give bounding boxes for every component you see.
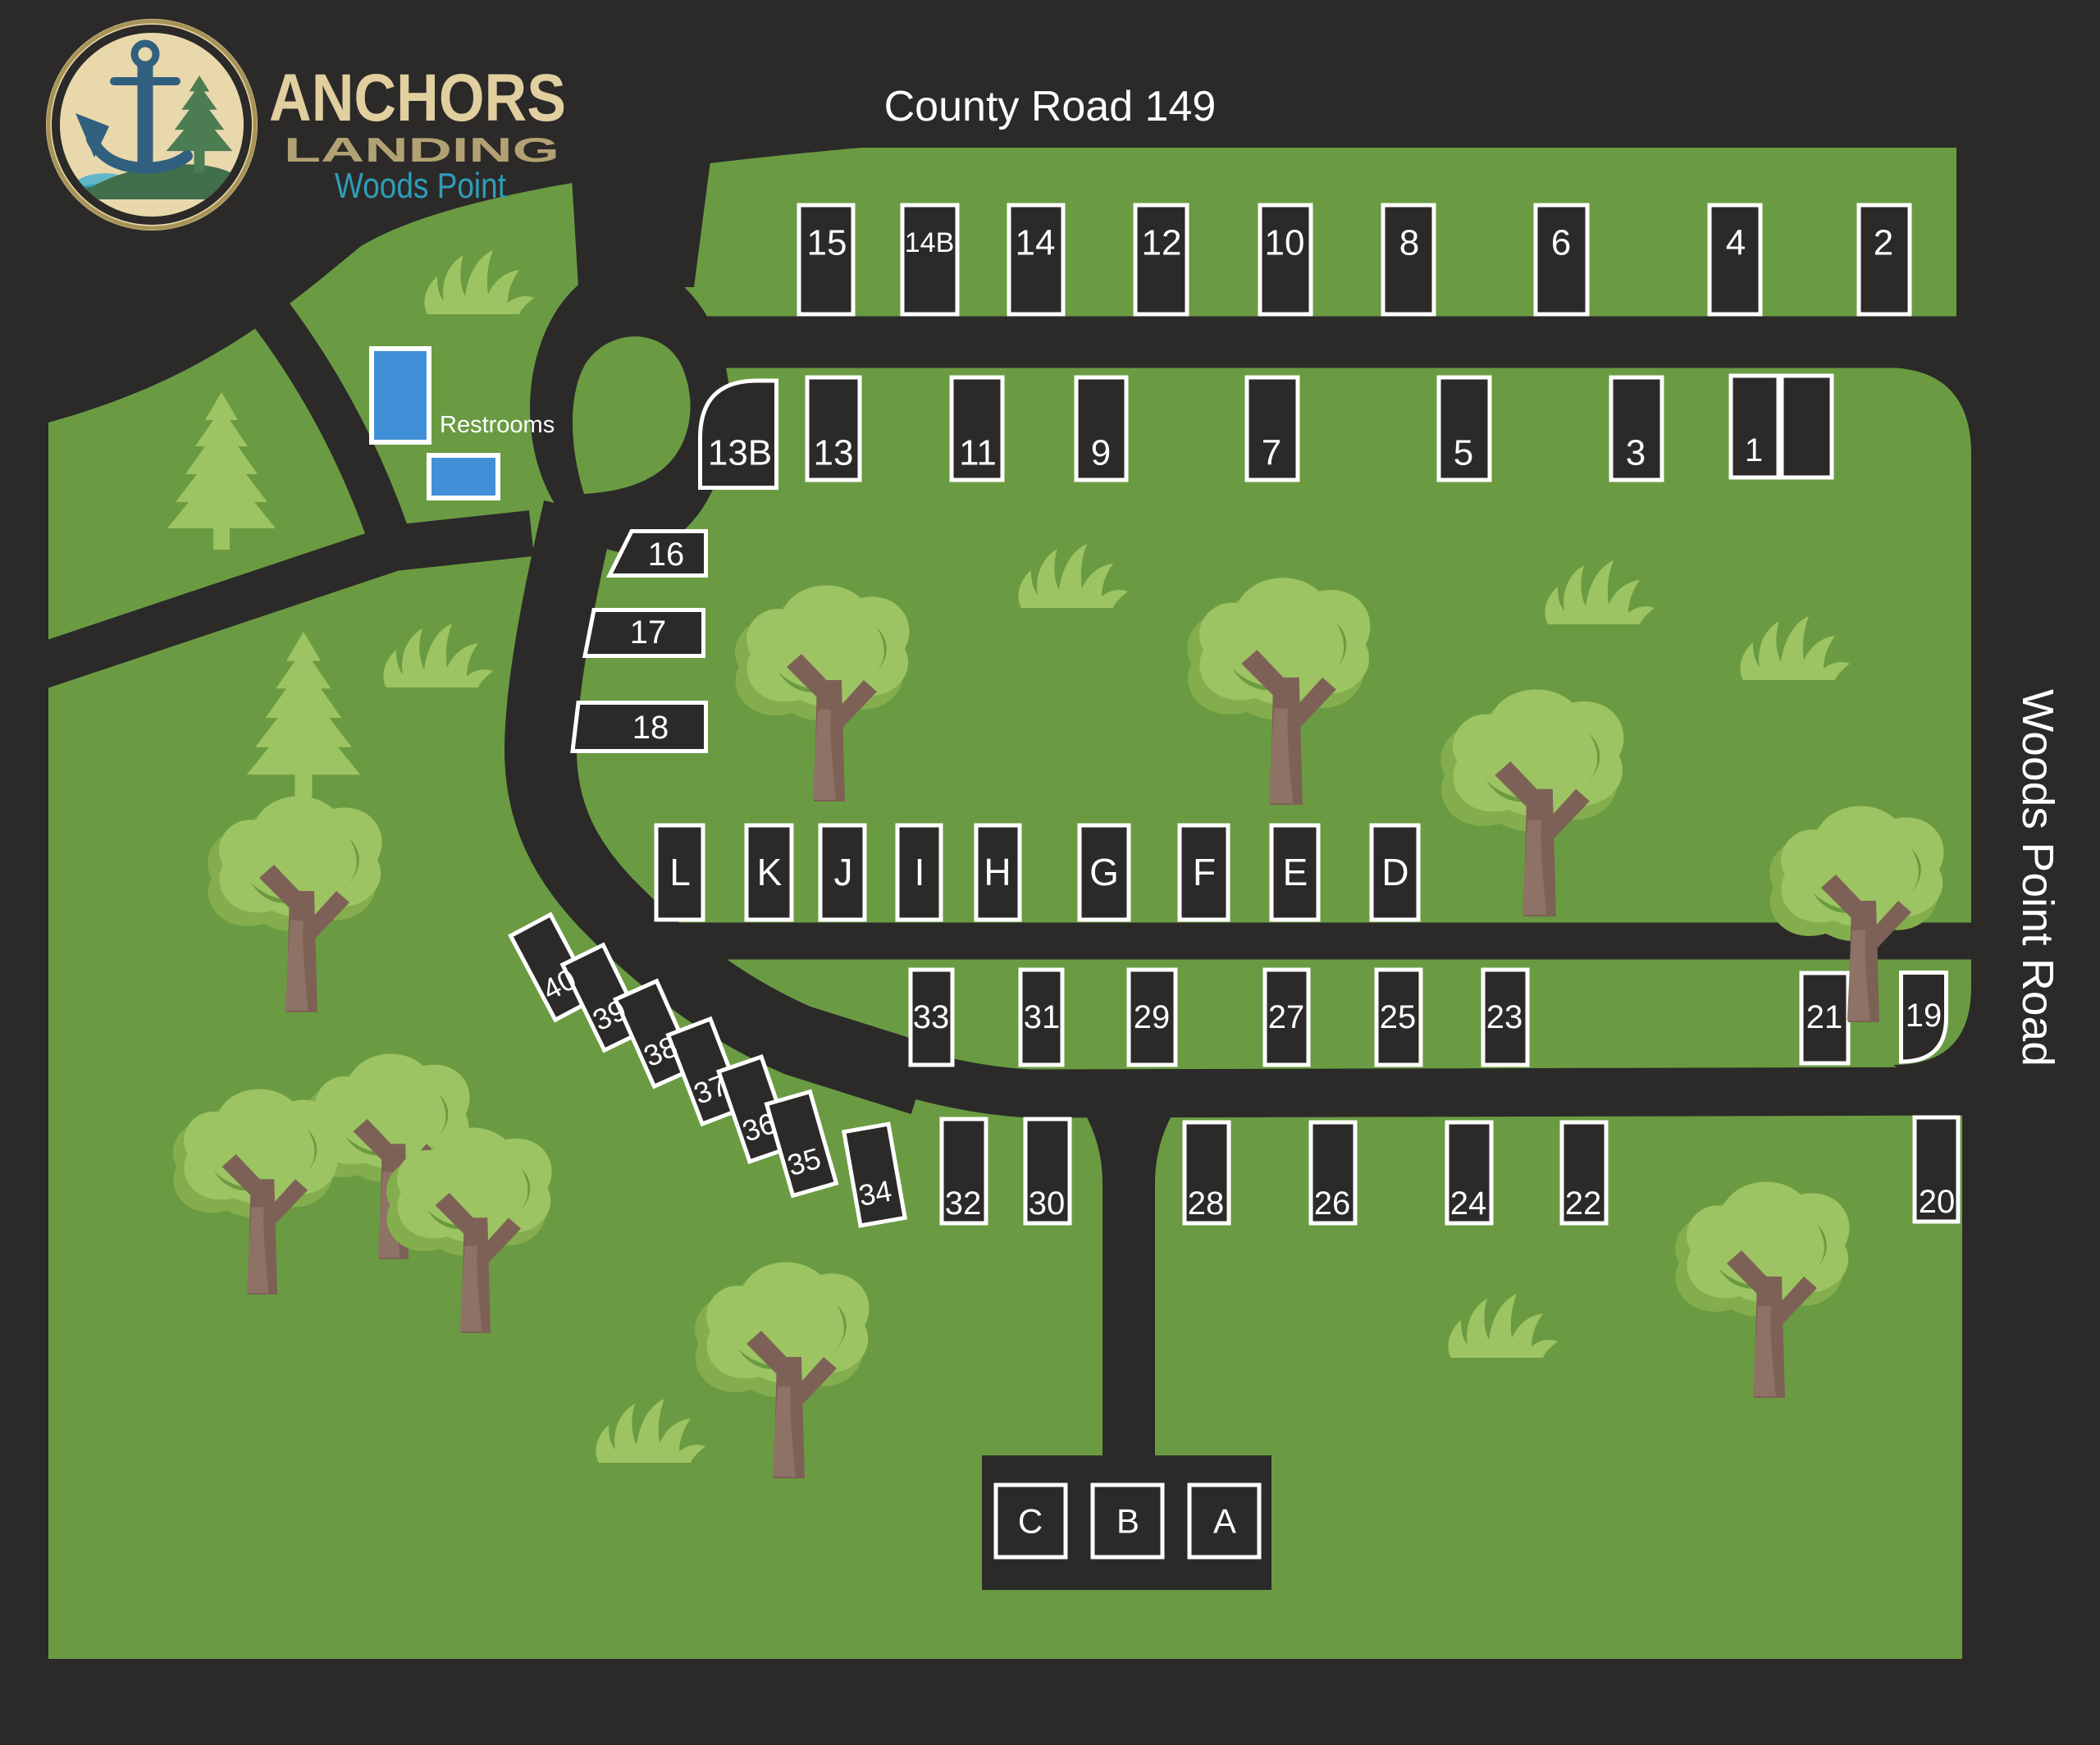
svg-text:F: F — [1193, 851, 1216, 893]
svg-text:4: 4 — [1726, 223, 1746, 263]
svg-text:1: 1 — [1745, 432, 1763, 468]
svg-text:Woods Point Road: Woods Point Road — [2013, 689, 2062, 1067]
svg-text:6: 6 — [1551, 223, 1571, 263]
svg-text:K: K — [757, 851, 783, 893]
svg-text:13B: 13B — [708, 433, 772, 473]
svg-text:3: 3 — [1626, 433, 1646, 473]
svg-text:7: 7 — [1262, 433, 1281, 473]
svg-text:16: 16 — [648, 537, 685, 573]
svg-text:LANDING: LANDING — [284, 130, 559, 169]
svg-text:Restrooms: Restrooms — [440, 412, 555, 438]
svg-text:14B: 14B — [905, 227, 955, 258]
svg-text:L: L — [669, 851, 691, 893]
svg-text:12: 12 — [1142, 223, 1182, 263]
svg-text:33: 33 — [913, 999, 950, 1035]
svg-text:21: 21 — [1806, 999, 1843, 1035]
svg-text:22: 22 — [1565, 1185, 1602, 1222]
svg-text:17: 17 — [630, 614, 667, 651]
svg-text:19: 19 — [1906, 998, 1942, 1034]
svg-text:B: B — [1116, 1502, 1139, 1541]
svg-text:30: 30 — [1029, 1185, 1066, 1222]
svg-text:29: 29 — [1134, 999, 1171, 1035]
svg-text:E: E — [1283, 851, 1308, 893]
svg-text:J: J — [834, 851, 853, 893]
svg-text:25: 25 — [1380, 999, 1417, 1035]
svg-text:I: I — [915, 851, 925, 893]
svg-text:28: 28 — [1188, 1185, 1225, 1222]
svg-text:G: G — [1089, 851, 1119, 893]
svg-text:Woods Point: Woods Point — [335, 166, 506, 206]
svg-text:9: 9 — [1091, 433, 1111, 473]
svg-text:31: 31 — [1024, 999, 1061, 1035]
svg-text:5: 5 — [1454, 433, 1473, 473]
svg-text:H: H — [984, 851, 1011, 893]
svg-text:14: 14 — [1016, 223, 1056, 263]
svg-text:8: 8 — [1399, 223, 1419, 263]
svg-text:20: 20 — [1919, 1184, 1956, 1220]
svg-text:13: 13 — [814, 433, 854, 473]
svg-text:11: 11 — [959, 433, 997, 473]
svg-text:34: 34 — [856, 1174, 895, 1213]
svg-text:24: 24 — [1450, 1185, 1487, 1222]
svg-text:A: A — [1213, 1502, 1236, 1541]
svg-text:C: C — [1018, 1502, 1043, 1541]
svg-text:2: 2 — [1874, 223, 1893, 263]
svg-text:15: 15 — [807, 223, 847, 263]
svg-text:26: 26 — [1314, 1185, 1351, 1222]
svg-text:County Road 149: County Road 149 — [884, 83, 1217, 130]
svg-text:D: D — [1381, 851, 1408, 893]
svg-text:27: 27 — [1268, 999, 1305, 1035]
svg-text:10: 10 — [1265, 223, 1305, 263]
svg-text:ANCHORS: ANCHORS — [269, 61, 566, 135]
svg-text:32: 32 — [945, 1185, 982, 1222]
svg-text:18: 18 — [632, 710, 669, 746]
svg-text:23: 23 — [1486, 999, 1523, 1035]
